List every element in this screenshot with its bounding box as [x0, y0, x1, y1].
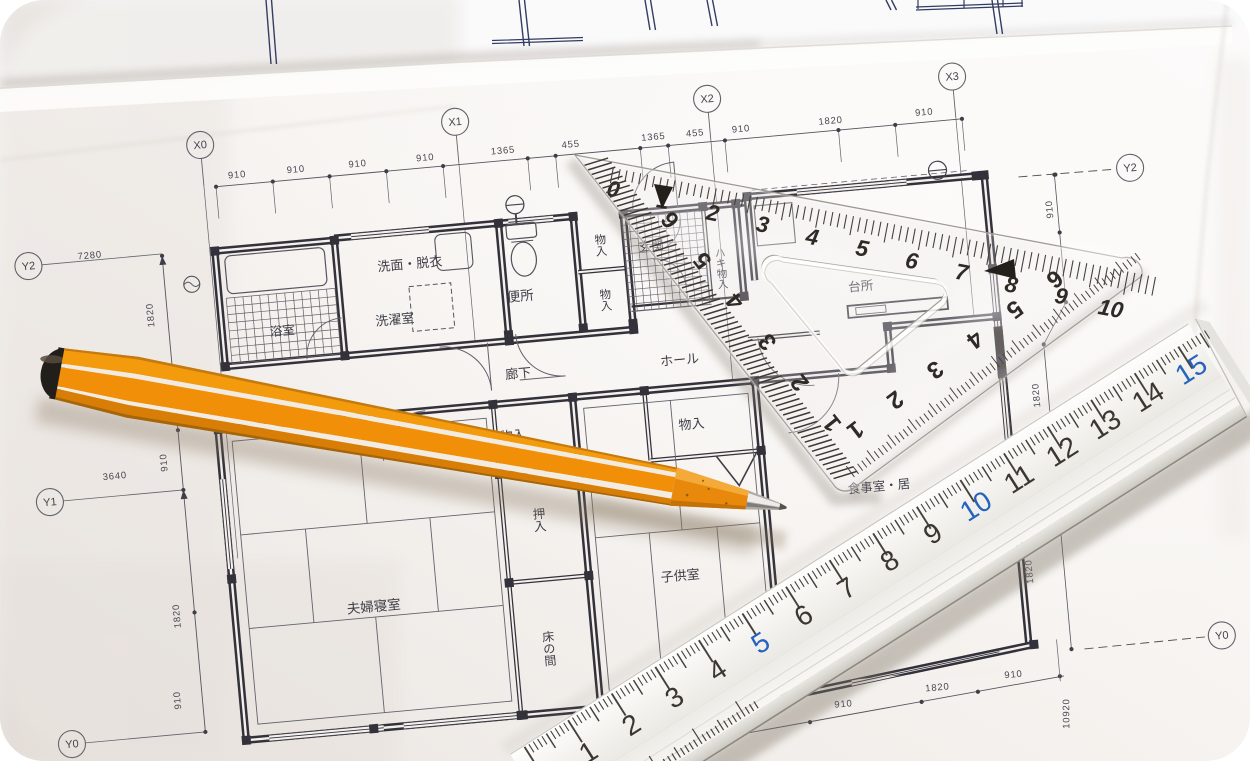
svg-text:Y2: Y2 [1123, 162, 1138, 175]
svg-text:10: 10 [1096, 294, 1126, 323]
svg-text:910: 910 [286, 164, 305, 177]
svg-text:X3: X3 [945, 71, 960, 84]
svg-text:1820: 1820 [171, 603, 184, 628]
svg-text:910: 910 [227, 169, 246, 182]
svg-text:Y0: Y0 [65, 738, 80, 751]
svg-text:910: 910 [172, 691, 185, 710]
svg-text:X2: X2 [700, 93, 715, 106]
svg-text:X0: X0 [193, 139, 208, 152]
svg-text:910: 910 [1044, 200, 1057, 219]
svg-text:910: 910 [158, 453, 171, 472]
svg-text:910: 910 [348, 158, 367, 171]
svg-text:X1: X1 [448, 116, 463, 129]
svg-text:455: 455 [561, 139, 580, 152]
svg-text:910: 910 [1004, 669, 1023, 682]
svg-text:Y1: Y1 [43, 496, 58, 509]
svg-text:1820: 1820 [144, 303, 157, 328]
svg-text:Y2: Y2 [21, 260, 36, 273]
svg-text:10920: 10920 [1061, 698, 1072, 728]
svg-text:1820: 1820 [925, 681, 950, 694]
svg-text:7280: 7280 [77, 249, 102, 262]
svg-text:910: 910 [915, 106, 934, 119]
svg-text:455: 455 [686, 127, 705, 140]
svg-text:910: 910 [416, 152, 435, 165]
svg-text:Y0: Y0 [1215, 629, 1230, 642]
svg-text:3640: 3640 [102, 470, 127, 483]
svg-text:1365: 1365 [490, 144, 515, 157]
svg-text:1820: 1820 [818, 115, 843, 128]
svg-text:910: 910 [731, 123, 750, 136]
svg-text:1365: 1365 [641, 131, 666, 144]
